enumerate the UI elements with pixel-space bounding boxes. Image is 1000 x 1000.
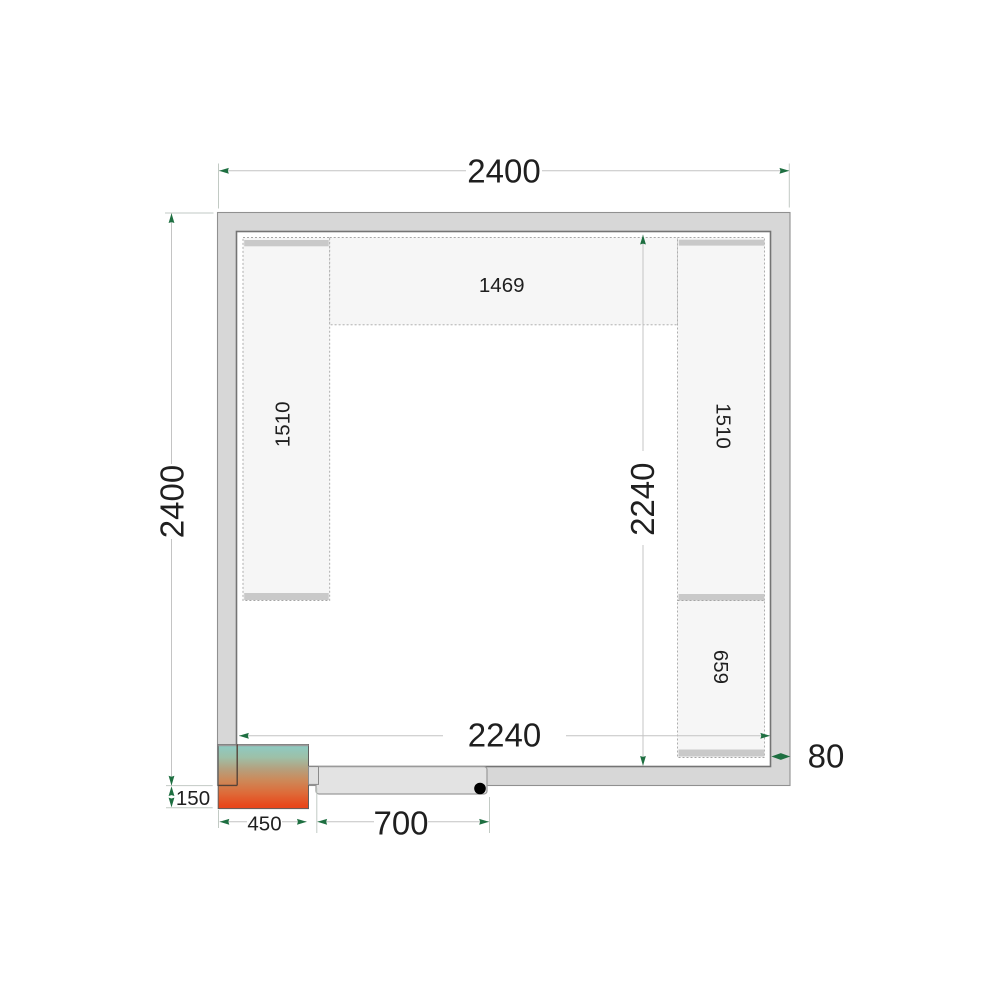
svg-text:80: 80 [808, 738, 845, 775]
svg-text:2400: 2400 [467, 152, 540, 189]
svg-text:2240: 2240 [468, 717, 541, 754]
svg-text:1510: 1510 [272, 401, 295, 447]
svg-text:700: 700 [373, 804, 428, 841]
svg-text:1510: 1510 [711, 403, 734, 449]
svg-text:659: 659 [709, 650, 732, 684]
svg-text:2240: 2240 [624, 462, 661, 535]
svg-text:2400: 2400 [154, 465, 191, 538]
svg-text:150: 150 [176, 787, 210, 810]
svg-text:1469: 1469 [479, 274, 525, 297]
svg-text:450: 450 [247, 813, 281, 836]
